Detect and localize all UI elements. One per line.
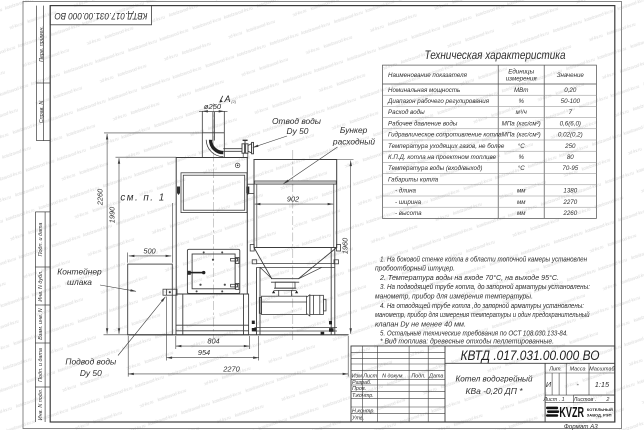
svg-text:%: % [518, 154, 524, 161]
svg-text:Наименование показателя: Наименование показателя [388, 72, 468, 79]
svg-text:мм: мм [517, 199, 526, 206]
svg-text:Отвод воды: Отвод воды [272, 116, 321, 126]
svg-text:Н.контр.: Н.контр. [352, 408, 375, 414]
svg-text:Температура воды (вход/выход): Температура воды (вход/выход) [388, 165, 482, 172]
svg-text:2260: 2260 [96, 188, 105, 206]
svg-text:Инв. N дубл.: Инв. N дубл. [38, 270, 44, 301]
svg-text:%: % [518, 98, 524, 105]
svg-text:80: 80 [567, 154, 574, 161]
svg-text:КВТД .017.031.00.000 ВО: КВТД .017.031.00.000 ВО [461, 348, 600, 364]
svg-text:Значение: Значение [557, 72, 585, 79]
svg-text:шлака: шлака [67, 277, 92, 287]
svg-text:1990: 1990 [108, 206, 117, 223]
svg-text:Изм.Лист: Изм.Лист [352, 373, 378, 379]
svg-text:1960: 1960 [341, 237, 350, 254]
svg-text:Дата: Дата [428, 373, 443, 379]
svg-text:500: 500 [143, 246, 156, 255]
svg-text:- длина: - длина [395, 188, 417, 195]
svg-text:Техническая характеристика: Техническая характеристика [425, 50, 566, 62]
svg-text:КВТД.017.031.00.000 ВО: КВТД.017.031.00.000 ВО [54, 11, 148, 22]
svg-text:пробоотборный штуцер.: пробоотборный штуцер. [375, 264, 455, 273]
svg-text:Формат А3: Формат А3 [564, 423, 598, 430]
svg-text:2: 2 [605, 397, 609, 403]
svg-text:Dy 50: Dy 50 [287, 126, 309, 136]
svg-text:А: А [224, 94, 231, 104]
svg-text:Подп. и дата: Подп. и дата [38, 223, 44, 257]
svg-text:Рабочее давление воды: Рабочее давление воды [388, 120, 458, 127]
svg-text:250: 250 [564, 143, 576, 150]
svg-text:Т.контр.: Т.контр. [352, 393, 374, 399]
svg-text:70-95: 70-95 [562, 165, 578, 172]
svg-text:* Вид топлива: древесные отхо: * Вид топлива: древесные отходы пеллетир… [380, 336, 554, 345]
svg-text:°С: °С [518, 165, 525, 172]
svg-text:Температура уходящих газов, не: Температура уходящих газов, не более [388, 143, 505, 150]
svg-text:Подп.: Подп. [411, 373, 425, 379]
svg-text:Номинальная мощность: Номинальная мощность [388, 87, 460, 94]
svg-text:0,6(6,0): 0,6(6,0) [560, 120, 581, 127]
svg-text:Лист . 1: Лист . 1 [542, 397, 564, 403]
svg-text:50-100: 50-100 [561, 98, 581, 105]
svg-text:измерения: измерения [506, 76, 538, 83]
svg-text:Масса: Масса [570, 366, 586, 372]
svg-text:м³/ч: м³/ч [516, 109, 528, 116]
svg-text:КВа -0,20 ДП *: КВа -0,20 ДП * [466, 386, 524, 396]
svg-text:И: И [546, 380, 552, 389]
svg-text:1:15: 1:15 [595, 380, 610, 389]
svg-text:КОТЕЛЬНЫЙ: КОТЕЛЬНЫЙ [587, 407, 613, 412]
svg-text:2270: 2270 [562, 199, 577, 206]
svg-text:Диапазон рабочего регулировани: Диапазон рабочего регулирования [387, 98, 490, 105]
svg-text:клапан Dу не менее 40 мм.: клапан Dу не менее 40 мм. [375, 319, 466, 328]
svg-text:1. На боковой стенке котла в о: 1. На боковой стенке котла в области топ… [380, 254, 587, 263]
svg-text:Масштаб: Масштаб [589, 366, 615, 372]
svg-text:Листов .: Листов . [573, 397, 597, 403]
svg-text:Утв.: Утв. [351, 415, 364, 421]
svg-text:Подвод воды: Подвод воды [65, 357, 116, 367]
svg-text:3. На подводящей трубе котла,: 3. На подводящей трубе котла, до запорно… [380, 282, 590, 291]
svg-text:4. На отводящей трубе котла ,д: 4. На отводящей трубе котла ,до запорной… [380, 301, 584, 310]
svg-text:7: 7 [569, 109, 573, 116]
svg-text:Взам. инв. N: Взам. инв. N [38, 308, 44, 340]
svg-text:1380: 1380 [563, 188, 577, 195]
svg-text:Бункер: Бункер [340, 125, 368, 135]
svg-text:954: 954 [198, 348, 210, 357]
svg-text:Габариты котла: Габариты котла [388, 176, 439, 183]
svg-text:манометр, прибор для измерения: манометр, прибор для измерения температу… [375, 292, 533, 301]
svg-text:Разраб.: Разраб. [352, 380, 372, 386]
svg-text:(2): (2) [231, 99, 237, 104]
svg-text:К.П.Д. котла на проектном топл: К.П.Д. котла на проектном топливе [388, 154, 497, 161]
svg-text:0,20: 0,20 [564, 87, 577, 94]
svg-text:Котел водогрейный: Котел водогрейный [456, 373, 533, 383]
svg-text:2. Температура воды на входе 7: 2. Температура воды на входе 70°С, на вы… [379, 273, 559, 282]
svg-text:°С: °С [518, 143, 525, 150]
svg-text:мм: мм [517, 188, 526, 195]
svg-text:804: 804 [207, 337, 219, 346]
svg-text:Расход воды: Расход воды [388, 109, 425, 116]
svg-text:Справ. N: Справ. N [39, 101, 45, 124]
svg-text:- высота: - высота [395, 210, 422, 217]
svg-text:2260: 2260 [562, 210, 577, 217]
svg-text:Контейнер: Контейнер [57, 266, 102, 276]
svg-text:Лит.: Лит. [548, 366, 562, 372]
svg-text:МВт: МВт [514, 87, 528, 94]
svg-text:МПа (кгс/см²): МПа (кгс/см²) [502, 132, 541, 139]
svg-text:0,02(0,2): 0,02(0,2) [558, 132, 583, 139]
svg-text:расходный: расходный [332, 136, 375, 146]
svg-text:см. п. 1: см. п. 1 [120, 193, 165, 204]
svg-text:манометр, прибор для измерения: манометр, прибор для измерения температу… [375, 310, 590, 319]
svg-text:Подп. и дата: Подп. и дата [38, 348, 44, 382]
svg-text:ø250: ø250 [204, 102, 222, 111]
svg-text:ЗАВОД. РЭП: ЗАВОД. РЭП [587, 412, 612, 417]
svg-text:Гидравлическое сопротивление к: Гидравлическое сопротивление котла [388, 132, 502, 139]
svg-text:Единицы: Единицы [508, 69, 534, 76]
svg-text:Dy 50: Dy 50 [80, 368, 102, 378]
svg-text:KVZR: KVZR [559, 405, 584, 421]
svg-text:- ширина: - ширина [395, 199, 422, 206]
svg-text:2270: 2270 [222, 364, 240, 373]
svg-text:Пров.: Пров. [352, 386, 366, 392]
svg-text:МПа (кгс/см²): МПа (кгс/см²) [502, 120, 541, 127]
svg-text:902: 902 [287, 195, 299, 204]
svg-text:N докум.: N докум. [382, 373, 404, 379]
svg-text:Перв. примен.: Перв. примен. [39, 26, 45, 62]
svg-text:Инв. N подл.: Инв. N подл. [38, 389, 44, 421]
svg-text:мм: мм [517, 210, 526, 217]
